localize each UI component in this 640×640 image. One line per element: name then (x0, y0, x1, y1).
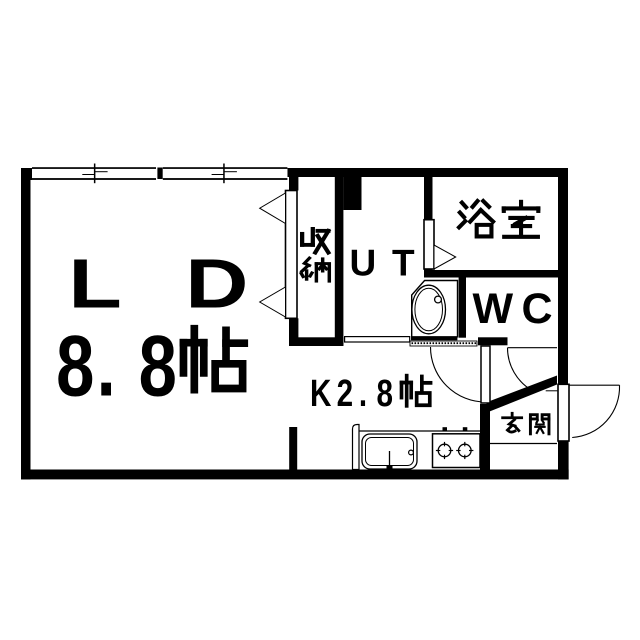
svg-text:U: U (350, 243, 377, 284)
svg-text:8: 8 (56, 318, 94, 414)
svg-text:K: K (310, 373, 332, 415)
svg-text:L: L (68, 244, 121, 323)
svg-text:C: C (522, 285, 553, 333)
svg-text:.: . (359, 373, 367, 415)
svg-text:W: W (473, 285, 514, 333)
svg-text:D: D (185, 244, 248, 323)
svg-text:T: T (392, 243, 415, 284)
svg-text:8: 8 (377, 373, 393, 415)
svg-text:2: 2 (337, 373, 353, 415)
svg-text:.: . (97, 318, 116, 414)
svg-text:8: 8 (139, 318, 177, 414)
